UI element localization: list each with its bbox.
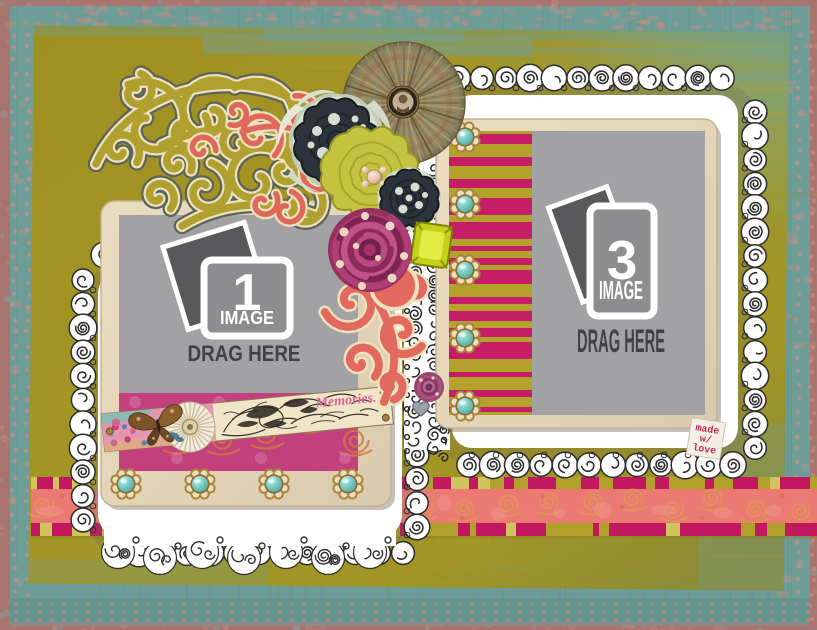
svg-text:DRAG HERE: DRAG HERE bbox=[577, 323, 665, 359]
svg-text:IMAGE: IMAGE bbox=[220, 308, 274, 328]
svg-text:IMAGE: IMAGE bbox=[599, 275, 643, 305]
svg-text:DRAG HERE: DRAG HERE bbox=[188, 341, 301, 366]
